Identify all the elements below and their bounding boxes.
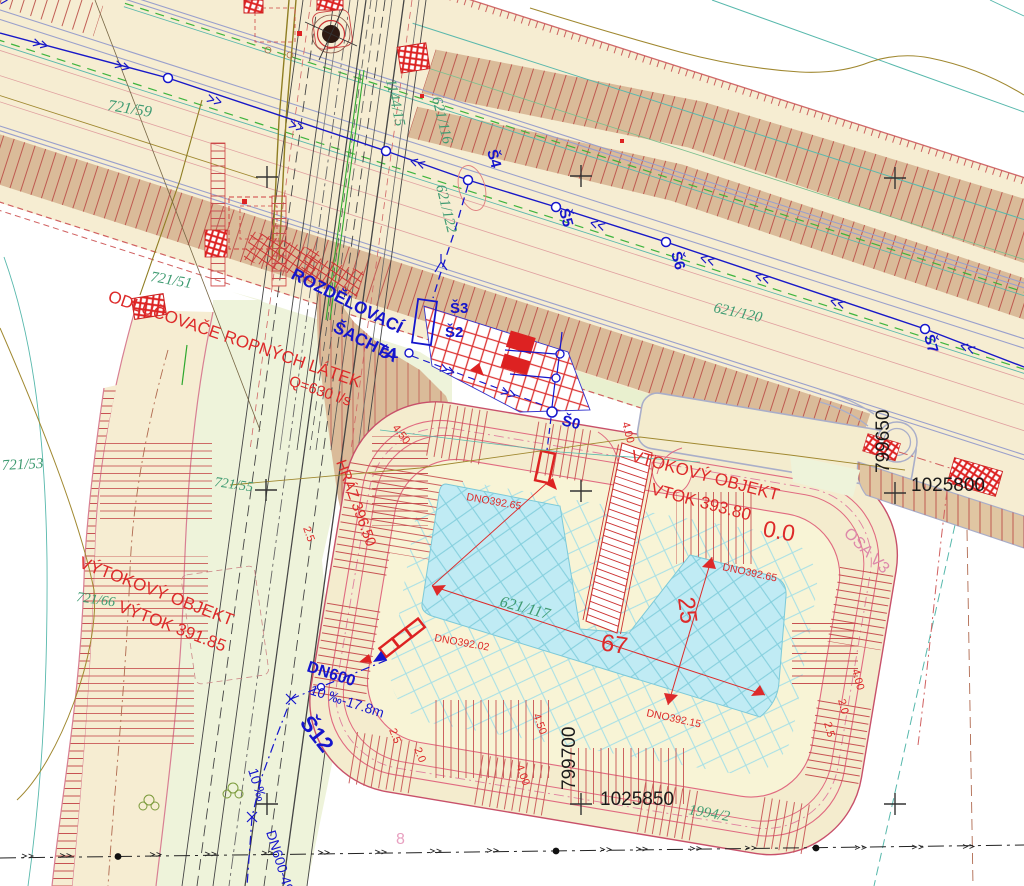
svg-text:25: 25 (672, 595, 702, 625)
svg-text:0.0: 0.0 (761, 515, 797, 546)
svg-text:8: 8 (396, 831, 405, 848)
svg-text:Š2: Š2 (445, 323, 463, 341)
svg-text:1025800: 1025800 (911, 475, 985, 496)
svg-text:799700: 799700 (559, 727, 580, 790)
svg-text:721/53: 721/53 (1, 456, 43, 474)
svg-text:67: 67 (599, 629, 630, 660)
svg-text:Š3: Š3 (450, 299, 468, 317)
svg-text:799650: 799650 (873, 410, 894, 473)
svg-text:1025850: 1025850 (600, 789, 674, 810)
svg-text:Š1: Š1 (380, 344, 398, 362)
